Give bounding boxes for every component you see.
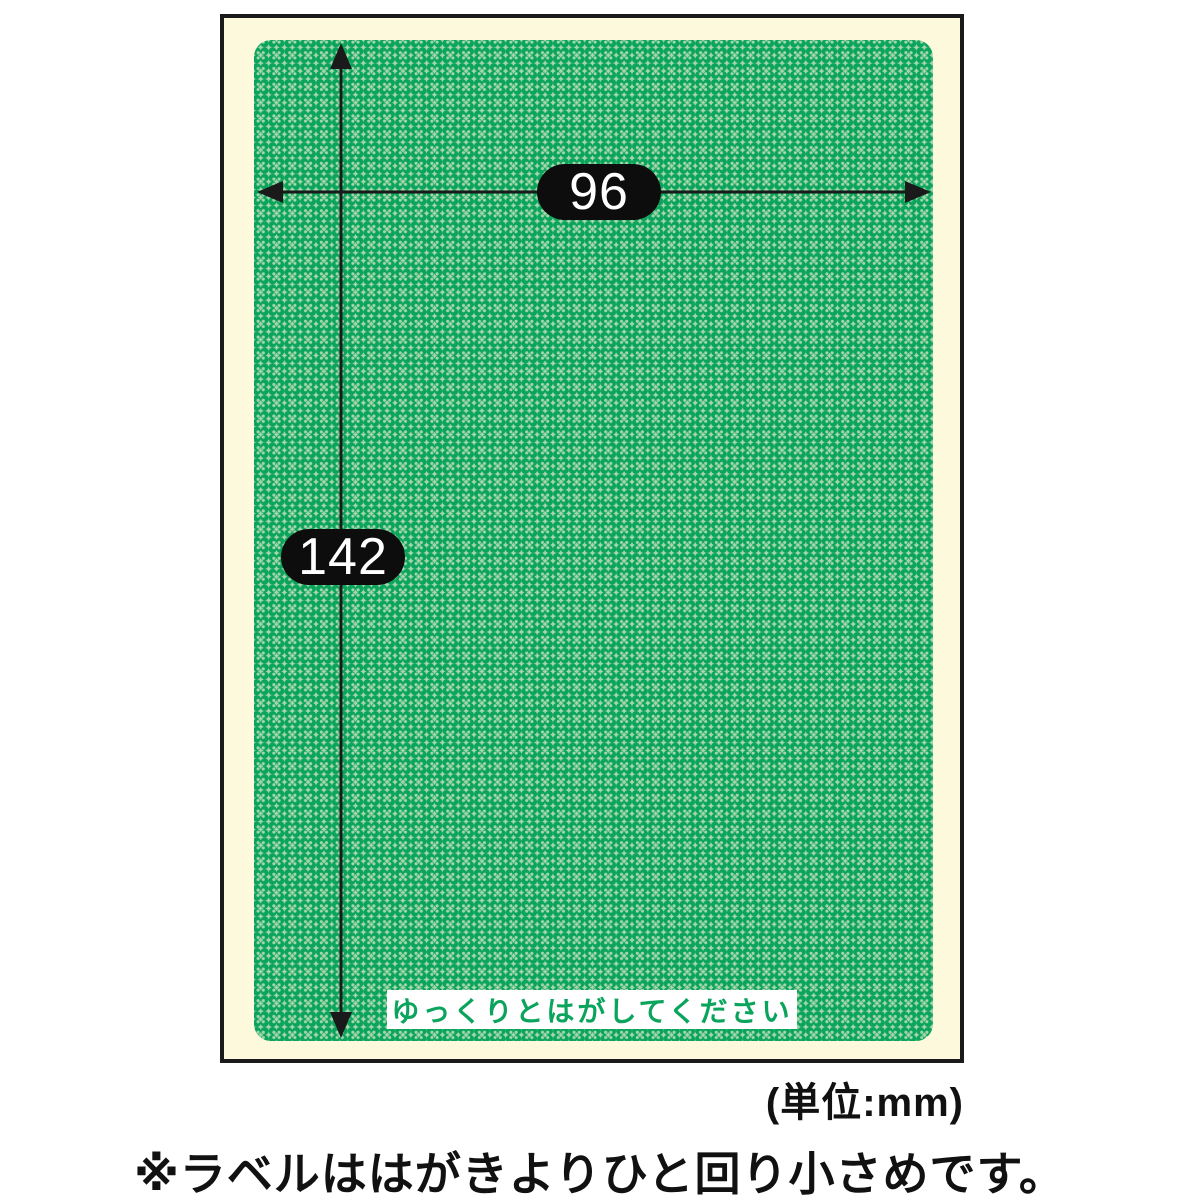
peel-instruction-box: ゆっくりとはがしてください [387, 990, 797, 1029]
size-footnote: ※ラベルははがきよりひと回り小さめです。 [0, 1138, 1200, 1200]
unit-note: (単位:mm) [220, 1070, 964, 1128]
diagram-root: 96 142 ゆっくりとはがしてください (単位:mm) ※ラベルははがきよりひ… [0, 0, 1200, 1200]
height-dimension-badge: 142 [281, 529, 405, 585]
width-dimension-badge: 96 [537, 164, 661, 220]
